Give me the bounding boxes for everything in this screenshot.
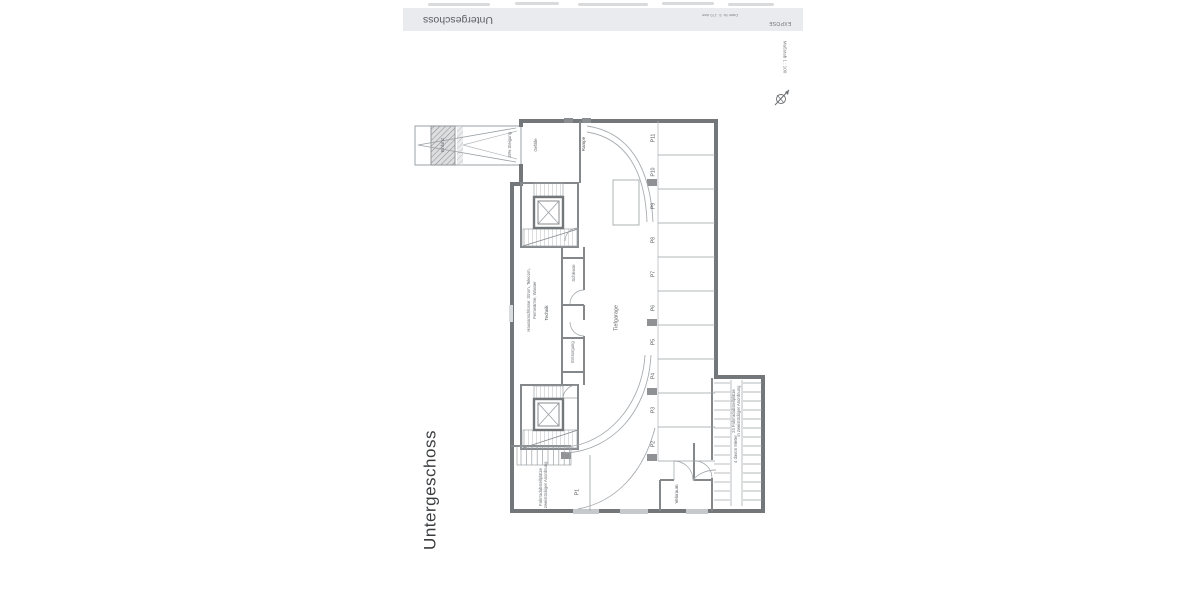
wall-pier <box>564 118 573 123</box>
parking-stall-label: P10 <box>652 168 657 177</box>
door-arc <box>570 290 584 304</box>
parking-stall-label: P11 <box>652 134 657 143</box>
door-arc <box>563 385 577 398</box>
wall-opening <box>573 509 599 514</box>
room-label-services-1: Hausanschlüsse: Strom, Telecom, <box>527 268 531 331</box>
parking-stall-label-p1: P1 <box>576 489 581 495</box>
parking-stall-label: P9 <box>652 203 657 209</box>
scanned-floor-plan-sheet: Untergeschoss Datei Nr. 5 .170 dwe EXPOS… <box>0 0 1200 600</box>
stairs <box>534 386 563 398</box>
bike-left-label-2: in zweistöckiger Anordnung <box>544 462 548 513</box>
entry-ramp <box>415 126 521 165</box>
wall-opening <box>509 305 513 322</box>
bike-right-label-3: 4 davon Mieter <box>734 435 738 463</box>
scale-label: Maßstab 1 : 100 <box>782 41 787 74</box>
floor-plan-drawing <box>0 0 1200 600</box>
parking-stall-label: P2 <box>652 441 657 447</box>
room-label-technik: Technik <box>545 305 550 320</box>
bike-right-label-2: in zweistöckiger Anordnung <box>737 386 741 437</box>
wall-pier <box>582 118 591 123</box>
room-label-tiefgarage: Tiefgarage <box>614 305 620 331</box>
stair-core-bottom <box>523 385 578 448</box>
stairs <box>534 183 563 196</box>
floor-name-title: Untergeschoss <box>422 430 439 550</box>
outer-wall <box>512 121 763 511</box>
structural-columns <box>561 179 657 461</box>
wall-opening <box>620 509 648 514</box>
door-arc <box>674 461 693 480</box>
ramp-gate-label: Einfahrt <box>441 138 445 152</box>
parking-stall-label: P3 <box>652 407 657 413</box>
aisle-storage-box <box>613 180 639 225</box>
parking-stall-dividers <box>658 155 715 461</box>
parking-stall-label: P8 <box>652 237 657 243</box>
room-label-veloraum: Veloraum <box>675 484 680 503</box>
door-arc <box>570 322 584 336</box>
room-label-entsorgung: Entsorgung <box>571 341 575 362</box>
ramp-name-label: Rampe <box>582 137 587 152</box>
stair-core-top <box>523 183 578 246</box>
room-label-schleuse: Schleuse <box>572 264 576 281</box>
parking-stall-label: P7 <box>652 271 657 277</box>
ramp-grade-label: 15% Steigung <box>508 132 512 158</box>
partition-walls <box>511 121 712 511</box>
room-label-services-2: Fernwärme, Wasser <box>533 281 537 319</box>
north-arrow-icon <box>775 90 789 105</box>
parking-stall-label: P4 <box>652 373 657 379</box>
parking-stall-label: P6 <box>652 305 657 311</box>
ramp-slope-label: Gefälle <box>534 138 538 151</box>
parking-stall-label: P5 <box>652 339 657 345</box>
wall-opening <box>686 509 708 514</box>
